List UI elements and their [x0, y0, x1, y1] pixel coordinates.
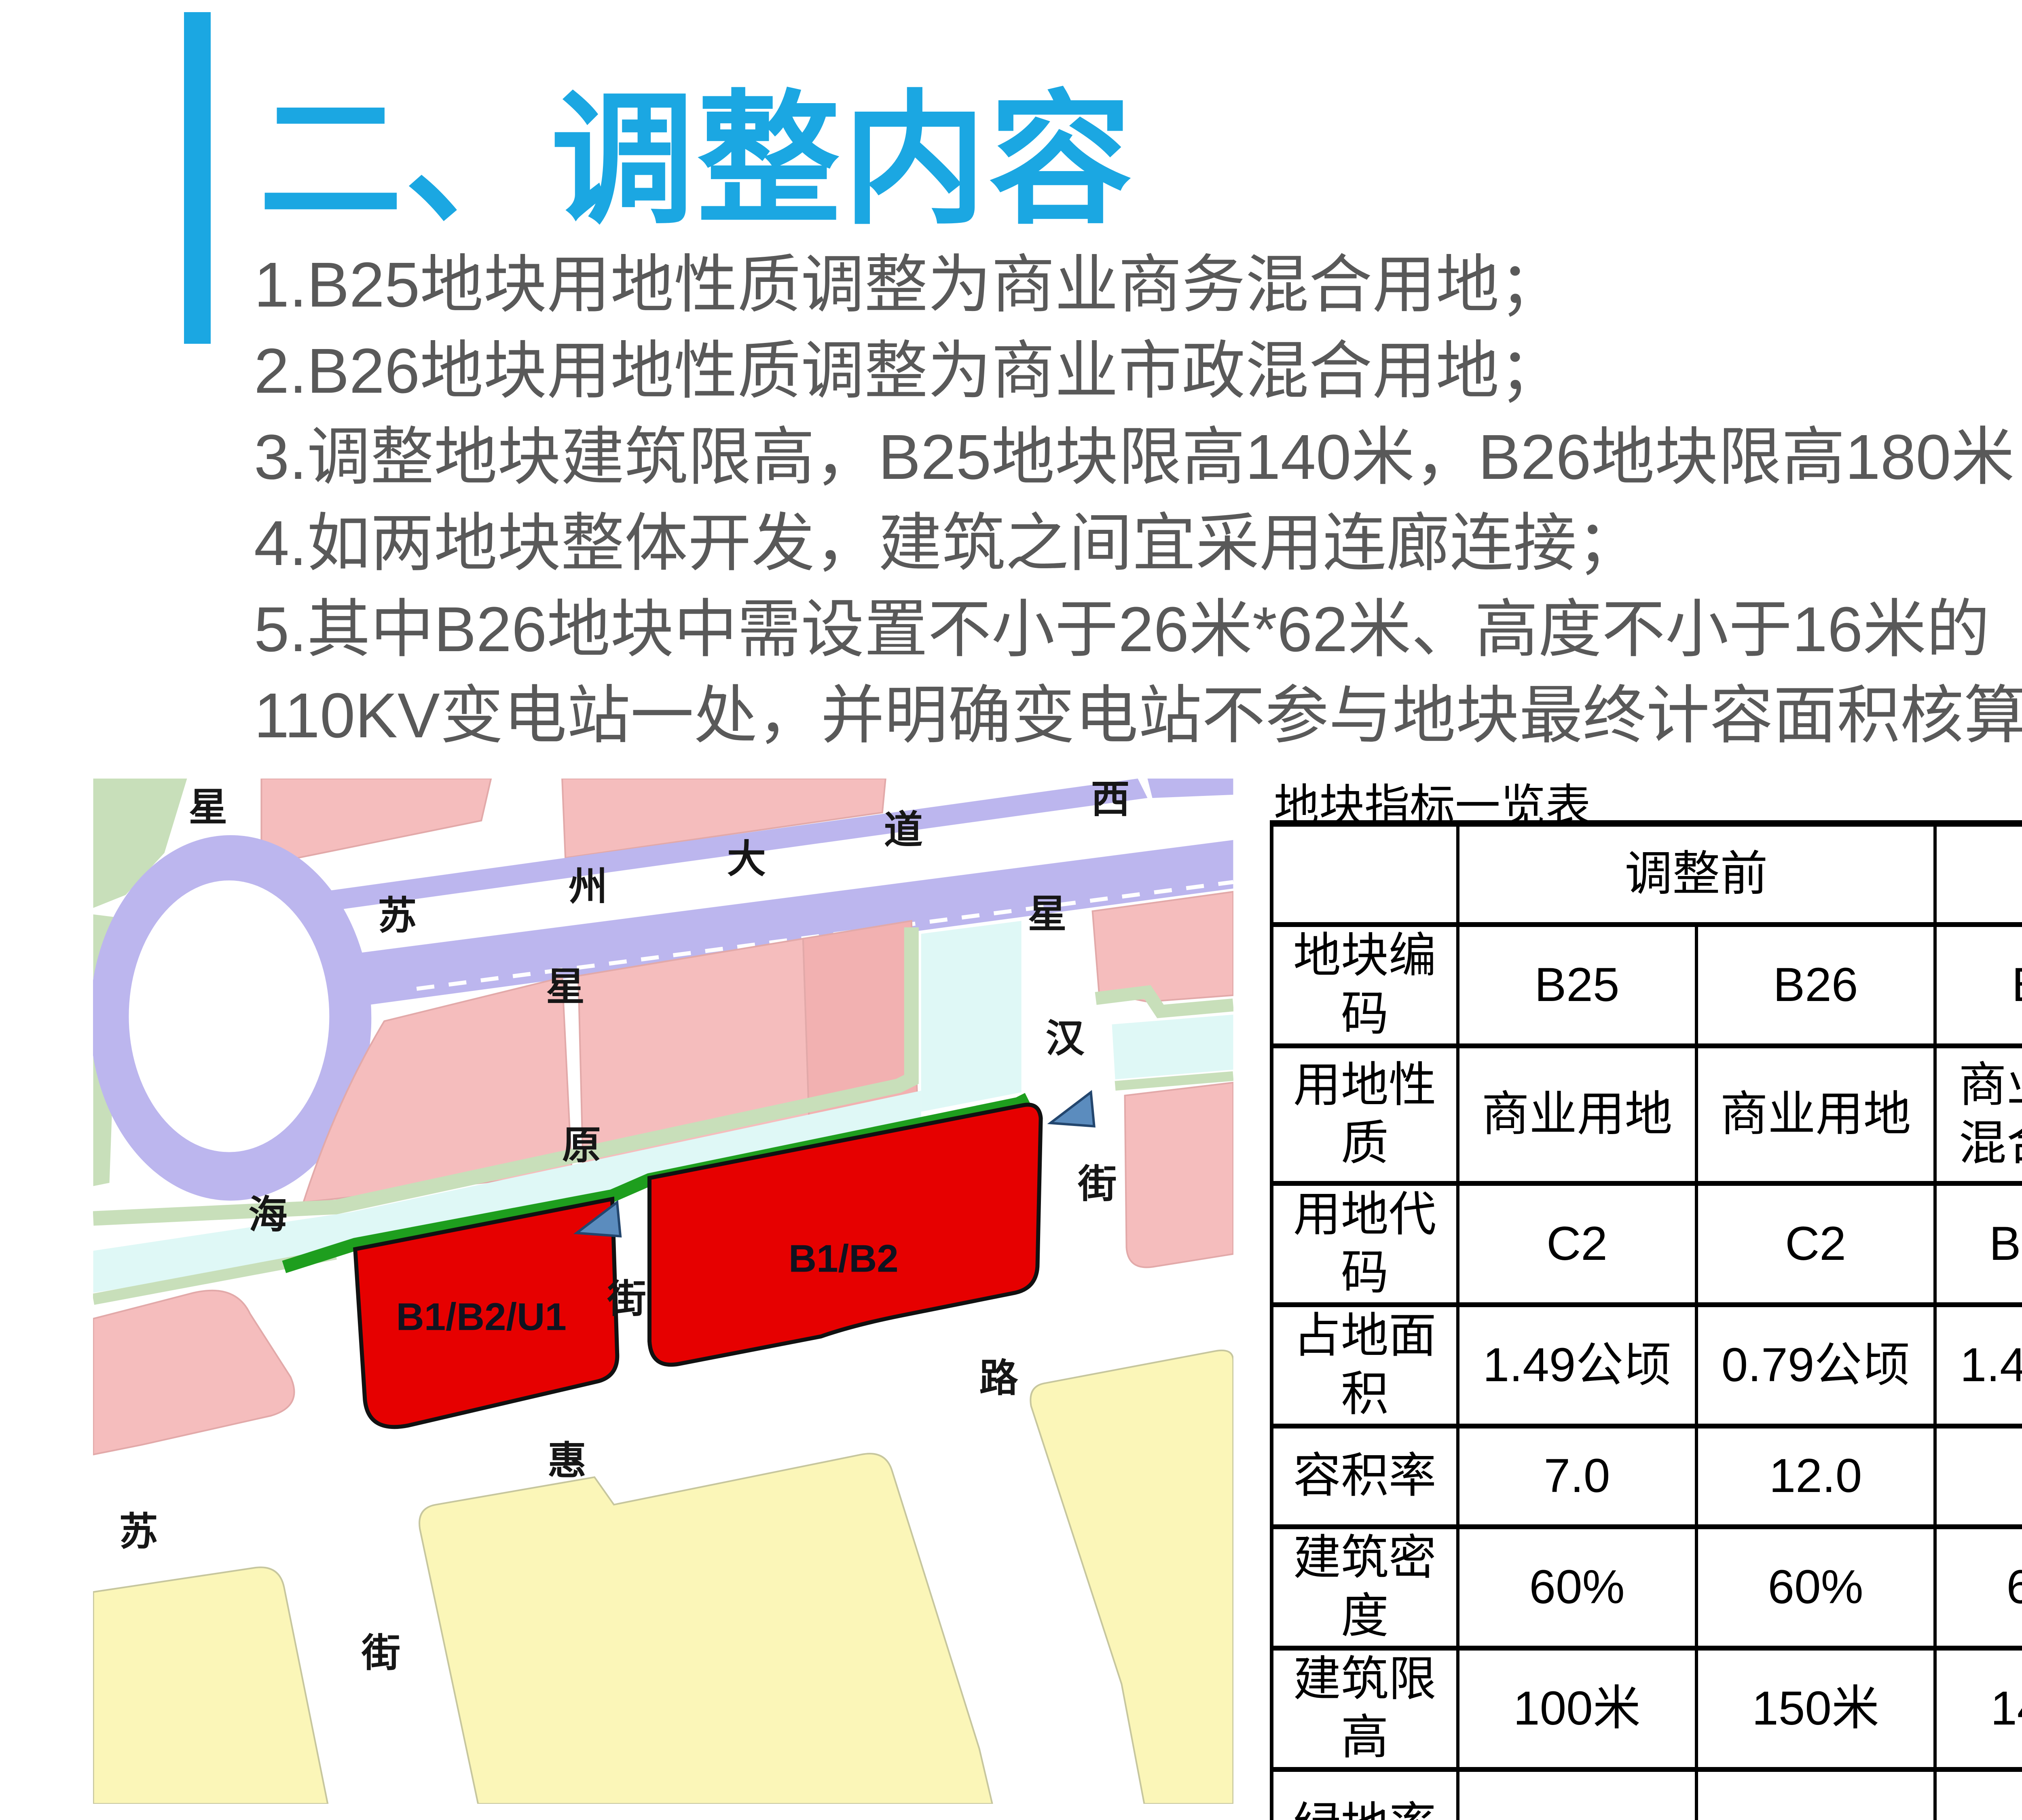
canal — [1112, 1015, 1233, 1079]
cell: —— — [1696, 1769, 1935, 1820]
canal — [921, 921, 1022, 1112]
table-row: 建筑密度 60% 60% 60% 60% — [1272, 1527, 2022, 1648]
row-label: 占地面积 — [1272, 1305, 1458, 1426]
table-row: 绿地率 —— —— —— —— — [1272, 1769, 2022, 1820]
street-label: 星 — [546, 965, 585, 1009]
row-label: 地块编码 — [1272, 925, 1458, 1046]
cell-changed: 商业商务 混合用地 — [1935, 1046, 2022, 1183]
street-label: 星 — [1028, 893, 1067, 936]
note-line-3: 3.调整地块建筑限高，B25地块限高140米，B26地块限高180米； — [254, 414, 2022, 500]
row-label: 绿地率 — [1272, 1769, 1458, 1820]
cell: C2 — [1696, 1183, 1935, 1305]
city-block — [93, 1291, 294, 1455]
parcel-label-b25: B1/B2/U1 — [396, 1295, 567, 1338]
cell: 1.49公顷 — [1458, 1305, 1696, 1426]
cell: 7.0 — [1458, 1426, 1696, 1527]
table-row: 用地性质 商业用地 商业用地 商业商务 混合用地 商业市政 混合用地 — [1272, 1046, 2022, 1183]
row-label: 用地性质 — [1272, 1046, 1458, 1183]
note-line-5: 5.其中B26地块中需设置不小于26米*62米、高度不小于16米的 — [254, 586, 2022, 673]
street-label: 街 — [1078, 1163, 1117, 1206]
cell: 12.0 — [1696, 1426, 1935, 1527]
cell-changed: 140米 — [1935, 1648, 2022, 1769]
cell: 150米 — [1696, 1648, 1935, 1769]
cell: —— — [1935, 1769, 2022, 1820]
cell: 商业用地 — [1458, 1046, 1696, 1183]
city-block-yellow — [93, 1567, 328, 1804]
page-title: 二、调整内容 — [259, 44, 1135, 252]
city-block — [1093, 892, 1233, 1002]
street-label: 苏 — [119, 1510, 158, 1553]
city-block — [1125, 1083, 1233, 1268]
indicator-table: 调整前 调整后 地块编码 B25 B26 B25 B26 用地性质 商业用地 商… — [1270, 820, 2022, 1820]
cell-changed: B1/B2 — [1935, 1183, 2022, 1305]
street-label: 道 — [884, 808, 923, 852]
street-label: 街 — [607, 1277, 646, 1321]
cell: C2 — [1458, 1183, 1696, 1305]
highway — [1148, 779, 1233, 798]
street-label: 星 — [188, 786, 227, 829]
row-label: 容积率 — [1272, 1426, 1458, 1527]
table-row: 占地面积 1.49公顷 0.79公顷 1.49公顷 0.79公顷 — [1272, 1305, 2022, 1426]
parcel-label-b26: B1/B2 — [789, 1237, 899, 1280]
city-block-yellow — [419, 1454, 992, 1804]
street-label: 州 — [569, 865, 607, 908]
city-block — [261, 779, 491, 863]
cell: 7.0 — [1935, 1426, 2022, 1527]
city-block-yellow — [1030, 1350, 1233, 1804]
street-label: 路 — [979, 1357, 1019, 1400]
row-label: 用地代码 — [1272, 1183, 1458, 1305]
title-accent-bar — [184, 12, 211, 344]
row-label: 建筑限高 — [1272, 1648, 1458, 1769]
table-row: 用地代码 C2 C2 B1/B2 B1/B2/U1 — [1272, 1183, 2022, 1305]
cell: 60% — [1935, 1527, 2022, 1648]
planning-map: 苏 州 大 道 西 星 海 街 星 原 街 星 汉 街 苏 惠 路 B1/B2/… — [93, 779, 1233, 1804]
note-line-6: 110KV变电站一处，并明确变电站不参与地块最终计容面积核算。 — [254, 673, 2022, 759]
slide: 二、调整内容 1.B25地块用地性质调整为商业商务混合用地； 2.B26地块用地… — [0, 0, 2022, 1820]
table-corner-cell — [1272, 823, 1458, 925]
cell: 100米 — [1458, 1648, 1696, 1769]
street-label: 苏 — [378, 894, 417, 938]
roundabout-center — [129, 880, 330, 1152]
group-header-before: 调整前 — [1458, 823, 1935, 925]
table-row: 容积率 7.0 12.0 7.0 12.0 — [1272, 1426, 2022, 1527]
street-label: 惠 — [548, 1439, 586, 1482]
note-line-1: 1.B25地块用地性质调整为商业商务混合用地； — [254, 242, 2022, 328]
cell: 1.49公顷 — [1935, 1305, 2022, 1426]
cell: B25 — [1458, 925, 1696, 1046]
note-line-2: 2.B26地块用地性质调整为商业市政混合用地； — [254, 328, 2022, 414]
street-label: 街 — [361, 1632, 400, 1675]
cell: —— — [1458, 1769, 1696, 1820]
street-label: 海 — [248, 1194, 287, 1237]
table-row: 地块编码 B25 B26 B25 B26 — [1272, 925, 2022, 1046]
group-header-after: 调整后 — [1935, 823, 2022, 925]
street-label: 西 — [1091, 779, 1130, 821]
table-row: 建筑限高 100米 150米 140米 180米 — [1272, 1648, 2022, 1769]
row-label: 建筑密度 — [1272, 1527, 1458, 1648]
street-label: 原 — [562, 1124, 601, 1167]
cell: 商业用地 — [1696, 1046, 1935, 1183]
notes-block: 1.B25地块用地性质调整为商业商务混合用地； 2.B26地块用地性质调整为商业… — [254, 242, 2022, 759]
parcel-pointer-icon — [1051, 1092, 1094, 1126]
cell: 60% — [1696, 1527, 1935, 1648]
cell: 60% — [1458, 1527, 1696, 1648]
cell: 0.79公顷 — [1696, 1305, 1935, 1426]
street-label: 大 — [727, 838, 766, 881]
note-line-4: 4.如两地块整体开发，建筑之间宜采用连廊连接； — [254, 500, 2022, 586]
street-label: 汉 — [1046, 1017, 1085, 1060]
cell: B25 — [1935, 925, 2022, 1046]
table-header-row: 调整前 调整后 — [1272, 823, 2022, 925]
cell: B26 — [1696, 925, 1935, 1046]
